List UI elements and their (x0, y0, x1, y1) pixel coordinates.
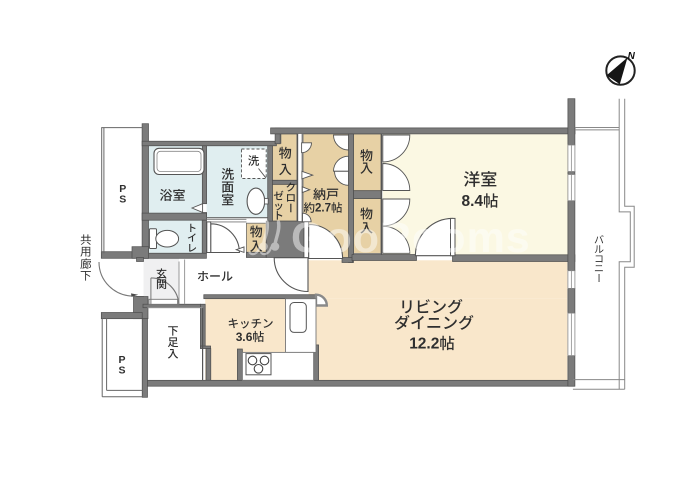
svg-text:GooRooms: GooRooms (291, 214, 531, 262)
svg-text:2: 2 (431, 336, 440, 353)
svg-text:7: 7 (325, 203, 331, 215)
svg-text:S: S (119, 193, 126, 205)
svg-text:S: S (118, 364, 125, 376)
svg-text:6: 6 (246, 330, 253, 344)
svg-text:N: N (628, 51, 636, 62)
svg-text:4: 4 (474, 193, 483, 210)
svg-text:2: 2 (418, 336, 427, 353)
